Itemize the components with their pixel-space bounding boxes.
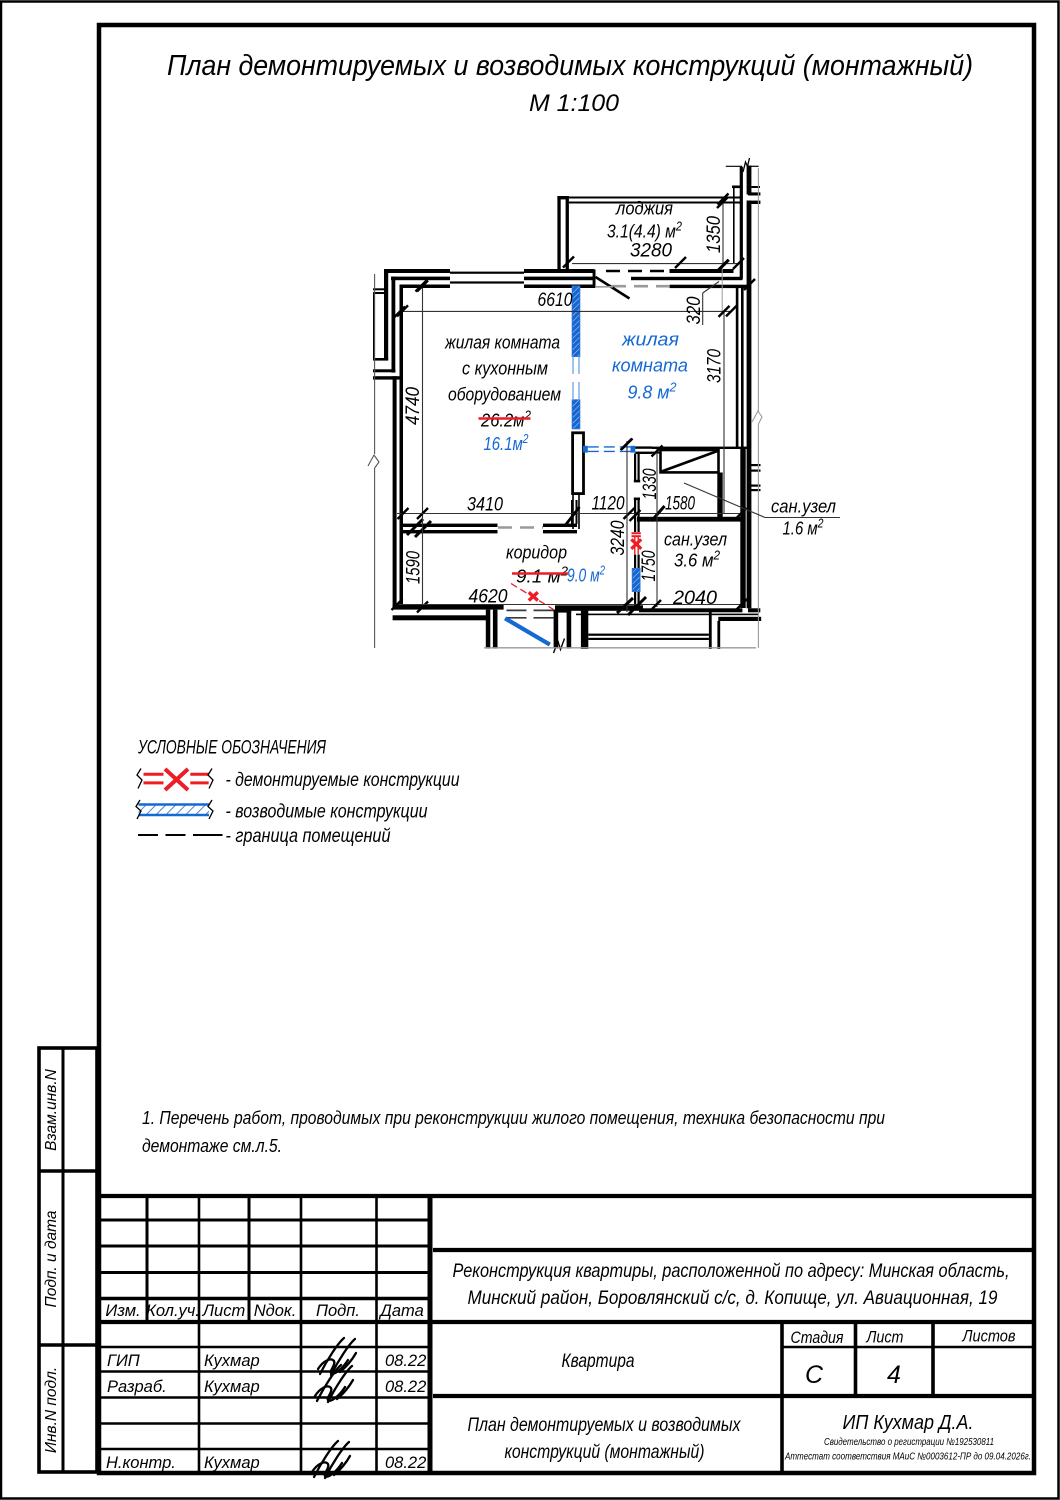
svg-text:4: 4 [887,1361,901,1389]
svg-text:4740: 4740 [402,387,424,425]
svg-text:2040: 2040 [672,587,717,609]
svg-text:Кухмар: Кухмар [204,1378,260,1396]
svg-text:Дата: Дата [378,1302,424,1320]
svg-text:- возводимые конструкции: - возводимые конструкции [226,802,428,823]
svg-text:сан.узел: сан.узел [771,496,837,517]
svg-text:Аттестат соответствия МАиС №0: Аттестат соответствия МАиС №0003612-ПР д… [784,1452,1031,1463]
svg-text:комната: комната [612,355,688,376]
svg-text:Реконструкция квартиры, распол: Реконструкция квартиры, расположенной по… [453,1260,1010,1282]
svg-text:сан.узел: сан.узел [664,529,727,550]
svg-text:4620: 4620 [469,586,508,608]
svg-text:1330: 1330 [639,468,661,499]
svg-text:М 1:100: М 1:100 [529,90,620,117]
svg-text:Разраб.: Разраб. [107,1378,167,1396]
svg-text:Свидетельство о регистрации №1: Свидетельство о регистрации №192530811 [824,1437,994,1448]
svg-text:16.1м2: 16.1м2 [484,431,530,454]
svg-text:коридор: коридор [506,542,567,563]
svg-text:жилая: жилая [621,329,679,350]
svg-text:План демонтируемых и возвод: План демонтируемых и возводимых конструк… [167,50,973,82]
svg-text:демонтаже см.л.5.: демонтаже см.л.5. [142,1136,282,1156]
svg-text:ИП Кухмар Д.А.: ИП Кухмар Д.А. [843,1411,974,1434]
svg-text:Изм.: Изм. [105,1302,140,1320]
svg-text:Кухмар: Кухмар [204,1352,260,1370]
svg-text:жилая комната: жилая комната [444,332,560,353]
svg-text:План демонтируемых и возводимы: План демонтируемых и возводимых [468,1414,742,1436]
svg-text:3240: 3240 [607,520,629,555]
svg-text:Кол.уч.: Кол.уч. [146,1302,200,1320]
svg-text:ГИП: ГИП [107,1352,140,1370]
svg-text:С: С [805,1361,824,1389]
svg-text:08.22: 08.22 [385,1454,426,1472]
svg-text:оборудованием: оборудованием [448,384,561,405]
svg-text:Взам.инв.N: Взам.инв.N [43,1068,60,1150]
svg-text:3.1(4.4) м2: 3.1(4.4) м2 [607,219,683,242]
svg-text:Инв.N подл.: Инв.N подл. [43,1367,60,1453]
svg-text:1120: 1120 [592,493,625,515]
svg-text:3280: 3280 [630,240,672,262]
svg-text:Лист: Лист [202,1302,245,1320]
svg-text:6610: 6610 [538,289,573,311]
svg-text:- граница помещений: - граница помещений [226,826,391,847]
svg-text:1590: 1590 [403,551,425,584]
svg-text:лоджия: лоджия [615,198,673,219]
svg-text:1750: 1750 [638,550,660,581]
svg-text:Лист: Лист [866,1328,904,1347]
svg-text:08.22: 08.22 [385,1378,426,1396]
svg-text:- демонтируемые конструкции: - демонтируемые конструкции [226,770,460,791]
svg-text:Стадия: Стадия [791,1328,844,1347]
svg-text:3410: 3410 [467,494,503,516]
svg-text:Листов: Листов [962,1327,1016,1346]
svg-text:Кухмар: Кухмар [204,1454,260,1472]
svg-text:1580: 1580 [665,493,695,515]
svg-text:Nдок.: Nдок. [254,1302,297,1320]
svg-text:Подп. и дата: Подп. и дата [43,1210,60,1307]
svg-text:Подп.: Подп. [316,1302,360,1320]
svg-text:Квартира: Квартира [562,1350,635,1372]
svg-text:Н.контр.: Н.контр. [106,1454,176,1472]
svg-text:УСЛОВНЫЕ ОБОЗНАЧЕНИЯ: УСЛОВНЫЕ ОБОЗНАЧЕНИЯ [137,738,326,759]
svg-text:с кухонным: с кухонным [462,358,548,379]
svg-text:Минский район, Боровлянский с/: Минский район, Боровлянский с/с, д. Копи… [468,1287,998,1309]
svg-text:3170: 3170 [704,349,726,383]
svg-text:1350: 1350 [703,216,725,253]
svg-text:1. Перечень работ, проводимых: 1. Перечень работ, проводимых при реконс… [142,1108,885,1128]
svg-text:320: 320 [683,296,705,324]
svg-text:конструкций (монтажный): конструкций (монтажный) [505,1441,705,1463]
svg-text:08.22: 08.22 [385,1352,426,1370]
